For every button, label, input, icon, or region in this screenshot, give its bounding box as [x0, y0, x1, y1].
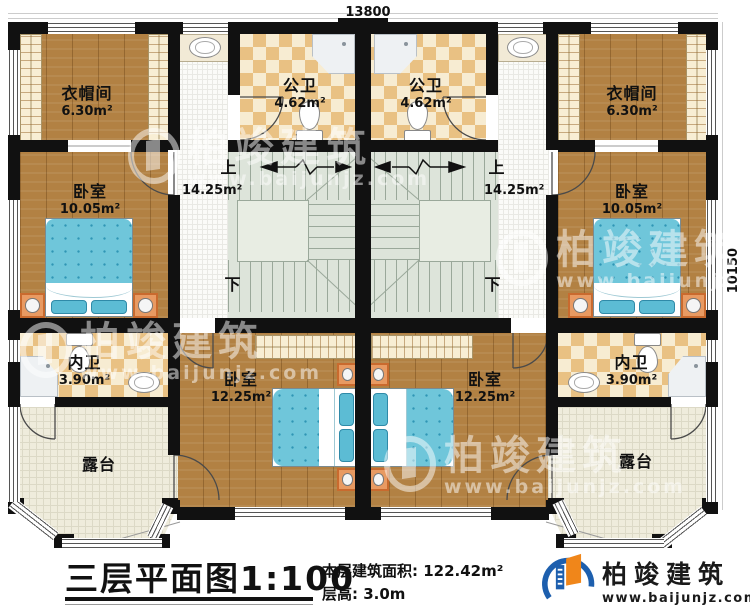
wall-segment	[706, 34, 718, 50]
room-label-bath-private-right: 内卫 3.90m²	[584, 353, 679, 389]
room-label-bath-public-right: 公卫 4.62m²	[371, 76, 481, 112]
room-name: 公卫	[245, 76, 355, 96]
wall-segment	[55, 397, 168, 407]
room-label-bath-public-left: 公卫 4.62m²	[245, 76, 355, 112]
room-area: 14.25m²	[484, 183, 544, 199]
room-area: 14.25m²	[182, 183, 242, 199]
window	[8, 50, 20, 135]
room-label-terrace-right: 露台	[581, 452, 691, 472]
window	[183, 22, 228, 34]
room-area: 4.62m²	[371, 96, 481, 112]
room-name: 露台	[581, 452, 691, 472]
wall-segment	[177, 507, 235, 520]
window	[62, 538, 162, 550]
wall-segment	[8, 397, 20, 407]
wall-segment	[546, 195, 558, 333]
stair-down-label-right: 下	[481, 275, 505, 295]
room-label-cloakroom-right: 衣帽间 6.30m²	[577, 84, 687, 120]
wall-segment	[345, 507, 381, 520]
wall-segment	[706, 397, 718, 407]
wall-segment	[20, 140, 68, 152]
room-label-terrace-left: 露台	[44, 455, 154, 475]
floor-info: 本层建筑面积: 122.42m² 层高: 3.0m	[322, 560, 503, 605]
room-area: 12.25m²	[430, 390, 540, 406]
wall-segment	[240, 140, 355, 152]
title-block: 三层平面图1:100	[65, 552, 355, 600]
wall-segment	[558, 397, 671, 407]
room-area: 4.62m²	[245, 96, 355, 112]
room-name: 下	[221, 275, 245, 295]
room-label-bedroom-bottom-right: 卧室 12.25m²	[430, 370, 540, 406]
wall-segment	[135, 22, 183, 34]
wall-segment	[558, 318, 718, 333]
wall-segment	[543, 22, 591, 34]
wall-segment	[8, 318, 168, 333]
window	[381, 507, 491, 519]
wall-segment	[363, 318, 511, 333]
dimension-right: 10150	[726, 248, 741, 293]
wall-segment	[8, 135, 20, 200]
room-area: 3.90m²	[584, 373, 679, 389]
window	[706, 200, 718, 310]
wall-segment	[228, 34, 240, 95]
wall-segment	[486, 34, 498, 95]
wall-segment	[706, 135, 718, 200]
dimension-top: 13800	[338, 5, 398, 20]
room-name: 衣帽间	[32, 84, 142, 104]
room-name: 下	[481, 275, 505, 295]
page-title: 三层平面图	[65, 559, 240, 598]
wall-segment	[678, 22, 718, 34]
wall-segment	[371, 140, 486, 152]
floor-plan: 衣帽间 6.30m² 衣帽间 6.30m² 公卫 4.62m² 公卫 4.62m…	[0, 0, 750, 616]
company-logo-brand: 柏竣建筑	[602, 555, 750, 591]
room-label-bedroom-left: 卧室 10.05m²	[35, 182, 145, 218]
room-area: 10.05m²	[577, 202, 687, 218]
wall-segment	[546, 34, 558, 150]
wall-segment	[8, 22, 48, 34]
room-name: 卧室	[430, 370, 540, 390]
window	[8, 200, 20, 310]
window	[8, 340, 20, 362]
company-logo: 柏竣建筑 www.baijunjz.com	[540, 549, 750, 611]
room-area: 12.25m²	[186, 390, 296, 406]
floor-area-text: 本层建筑面积: 122.42m²	[322, 560, 503, 583]
wall-segment	[168, 34, 180, 150]
window	[706, 340, 718, 362]
room-name: 卧室	[35, 182, 145, 202]
room-name: 露台	[44, 455, 154, 475]
stair-area-left: 14.25m²	[182, 183, 242, 199]
room-name: 上	[482, 158, 512, 178]
wall-segment	[215, 318, 363, 333]
room-label-bath-private-left: 内卫 3.90m²	[37, 353, 132, 389]
stair-up-label-left: 上	[214, 158, 244, 178]
room-name: 内卫	[584, 353, 679, 373]
room-label-bedroom-bottom-left: 卧室 12.25m²	[186, 370, 296, 406]
wall-segment	[355, 22, 371, 520]
stair-up-label-right: 上	[482, 158, 512, 178]
room-label-bedroom-right: 卧室 10.05m²	[577, 182, 687, 218]
room-area: 3.90m²	[37, 373, 132, 389]
room-area: 10.05m²	[35, 202, 145, 218]
window	[48, 22, 135, 34]
wall-segment	[491, 507, 549, 520]
wall-segment	[658, 140, 706, 152]
stair-area-right: 14.25m²	[484, 183, 544, 199]
room-name: 上	[214, 158, 244, 178]
wall-segment	[131, 140, 168, 152]
wall-segment	[168, 333, 180, 455]
wall-segment	[486, 140, 498, 152]
stair-down-label-left: 下	[221, 275, 245, 295]
company-logo-url: www.baijunjz.com	[602, 591, 750, 606]
wall-segment	[8, 34, 20, 50]
window	[235, 507, 345, 519]
room-name: 卧室	[186, 370, 296, 390]
room-name: 卧室	[577, 182, 687, 202]
wall-segment	[228, 140, 240, 152]
room-area: 6.30m²	[32, 104, 142, 120]
window	[591, 22, 678, 34]
window	[498, 22, 543, 34]
room-area: 6.30m²	[577, 104, 687, 120]
window	[706, 407, 718, 502]
window	[706, 50, 718, 135]
window	[8, 407, 20, 502]
room-name: 内卫	[37, 353, 132, 373]
room-label-cloakroom-left: 衣帽间 6.30m²	[32, 84, 142, 120]
wall-segment	[558, 140, 595, 152]
floor-height-text: 层高: 3.0m	[322, 583, 503, 606]
wall-segment	[546, 333, 558, 455]
company-logo-icon	[540, 549, 596, 611]
wall-segment	[168, 195, 180, 333]
room-name: 公卫	[371, 76, 481, 96]
room-name: 衣帽间	[577, 84, 687, 104]
